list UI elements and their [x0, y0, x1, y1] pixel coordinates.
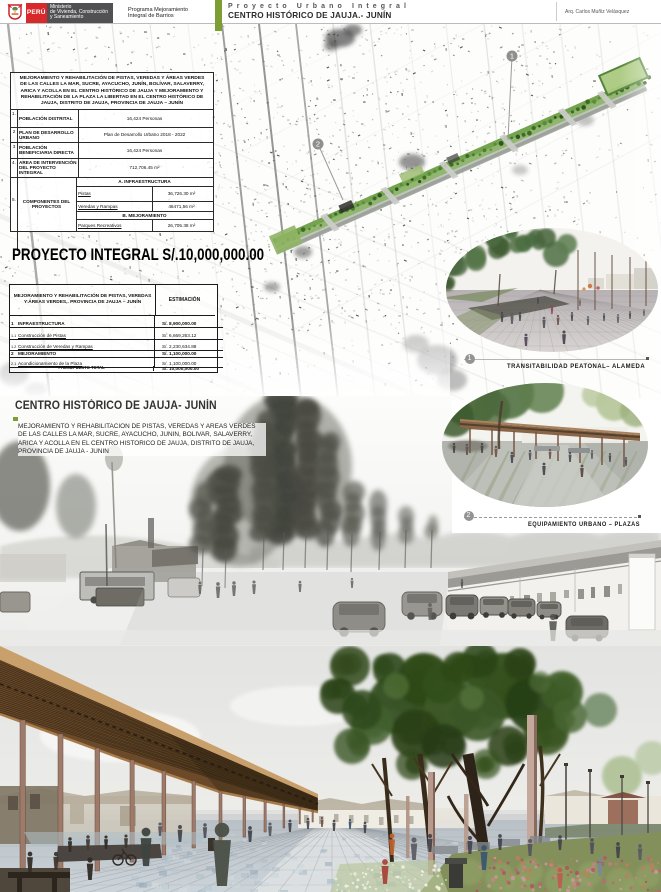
- svg-text:2: 2: [316, 140, 320, 149]
- svg-text:1: 1: [510, 52, 514, 61]
